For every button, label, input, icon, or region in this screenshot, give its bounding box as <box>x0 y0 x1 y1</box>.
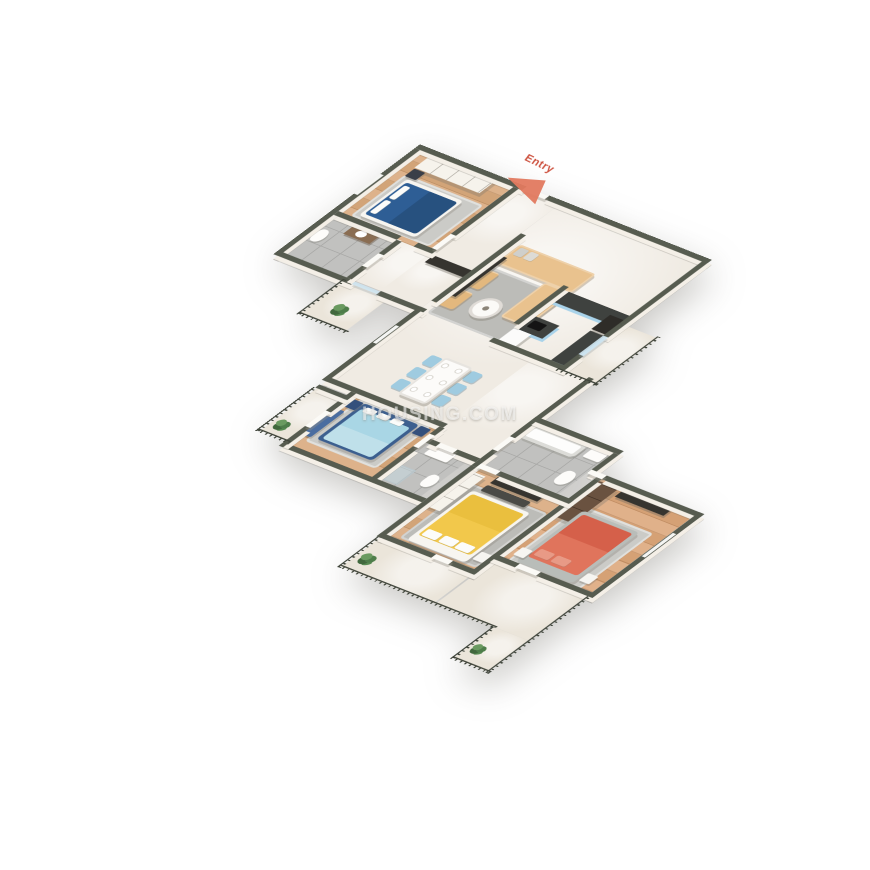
kitchen-cooktop <box>527 320 548 331</box>
entry-arrow-icon <box>502 166 545 204</box>
entry-marker: Entry <box>498 156 564 204</box>
dining-plate-3 <box>408 386 420 393</box>
dining-plate-4 <box>453 368 465 375</box>
coffee-table-decor <box>481 306 491 312</box>
floor-plan-canvas: HOUSING.COM Entry <box>0 0 870 870</box>
dining-plate-5 <box>437 380 449 387</box>
building-shadow-wrapper <box>0 0 870 870</box>
housing-watermark: HOUSING.COM <box>362 404 518 426</box>
bathroom1-washbasin <box>353 230 370 239</box>
dining-plate-6 <box>421 391 433 398</box>
dining-plate-2 <box>424 374 436 381</box>
dining-plate-1 <box>439 363 451 370</box>
